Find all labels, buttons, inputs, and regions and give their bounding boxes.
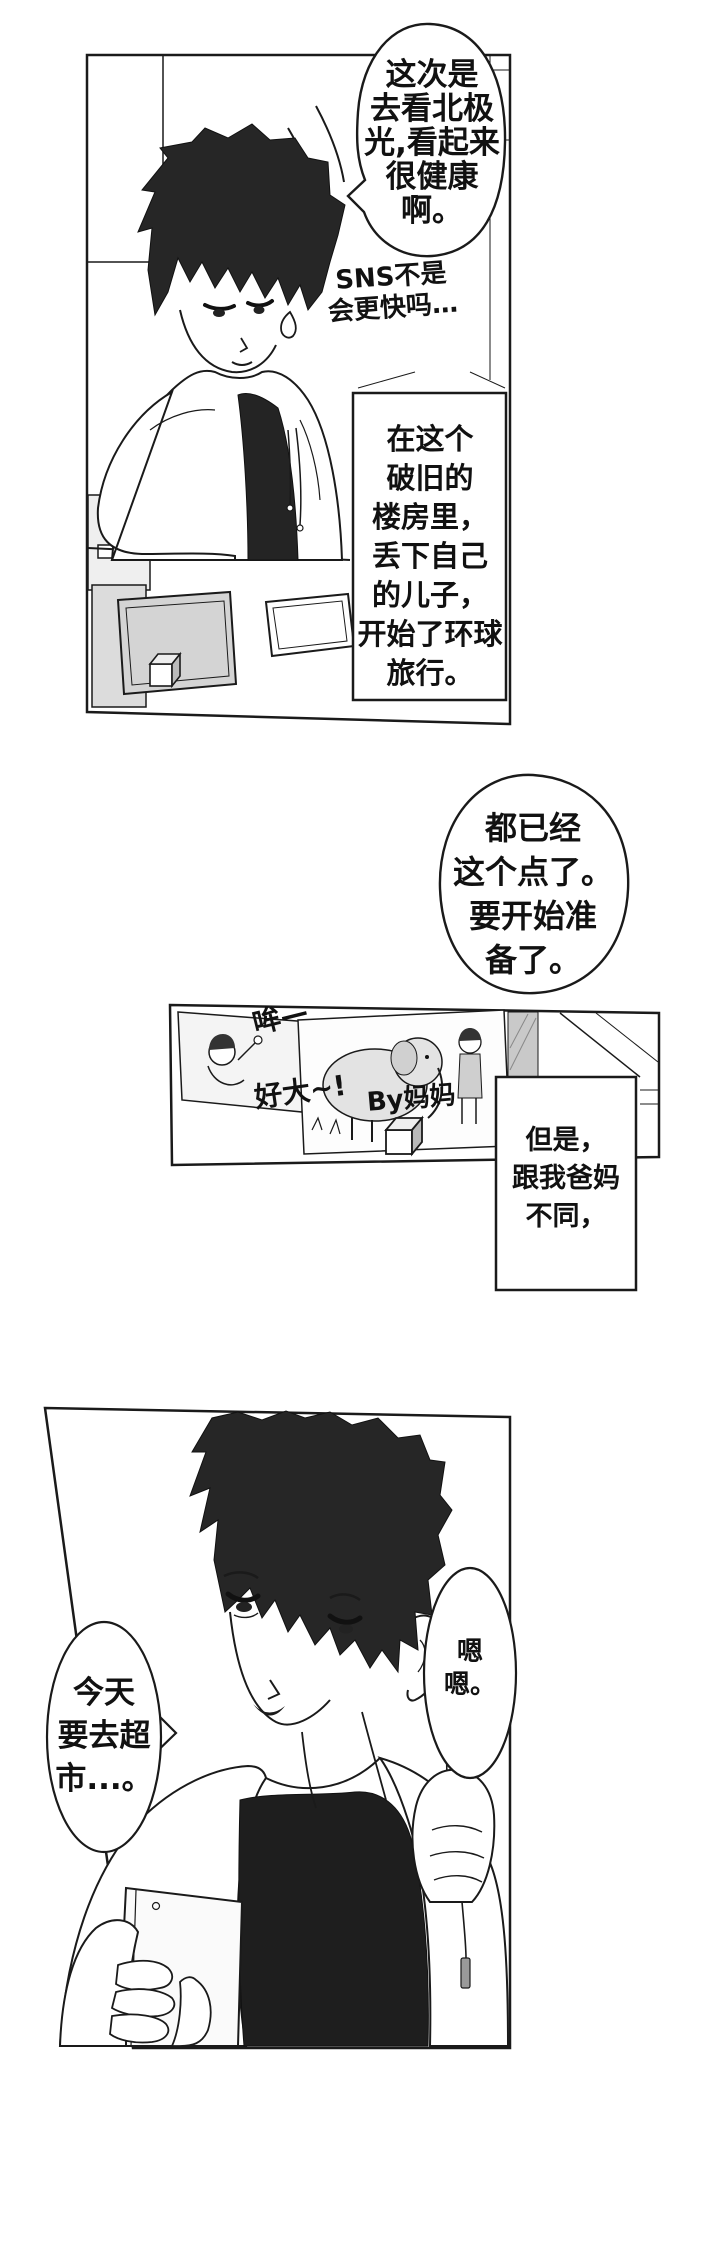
speech-text-aurora: 这次是 去看北极 光,看起来 很健康 啊。 xyxy=(352,58,512,228)
narration-text-building: 在这个 破旧的 楼房里， 丢下自己 的儿子， 开始了环球 旅行。 xyxy=(355,420,505,693)
thought-text-sns: SNS不是 会更快吗… xyxy=(310,256,474,329)
speech-text-time: 都已经 这个点了。 要开始准 备了。 xyxy=(438,806,628,982)
speech-text-mmhmm: 嗯 嗯。 xyxy=(428,1636,512,1702)
small-box-illustration xyxy=(150,654,180,686)
narration-text-parents: 但是， 跟我爸妈 不同， xyxy=(498,1122,634,1236)
speech-text-supermarket: 今天 要去超 市...。 xyxy=(46,1672,162,1801)
cube-illustration xyxy=(386,1118,422,1154)
manga-page: 这次是 去看北极 光,看起来 很健康 啊。 SNS不是 会更快吗… 在这个 破旧… xyxy=(0,0,720,2251)
tablet-illustration xyxy=(266,594,354,656)
